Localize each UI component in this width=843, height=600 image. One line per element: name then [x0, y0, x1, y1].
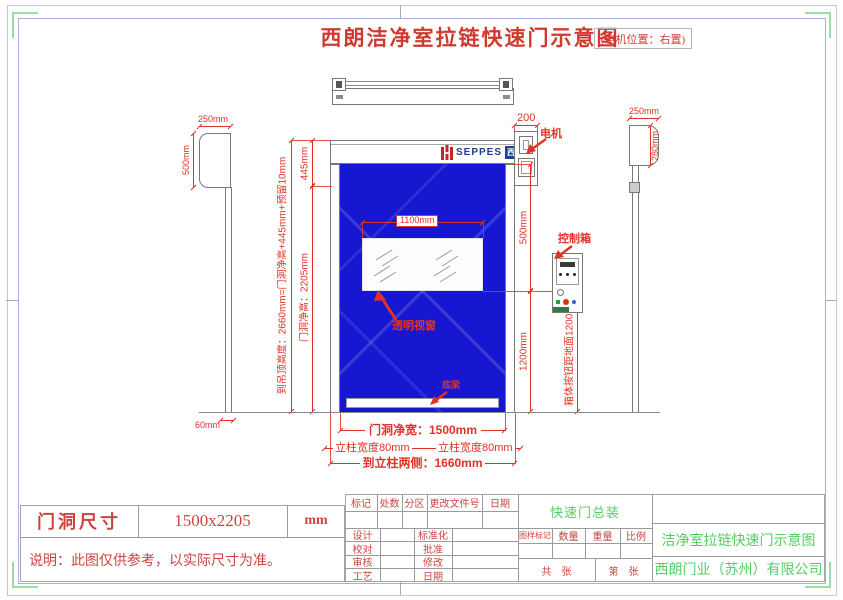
- clear-height-label: 门洞净高：2205mm: [300, 243, 311, 353]
- seppes-logo-icon: [441, 145, 453, 160]
- door-bottom-beam: [346, 398, 499, 408]
- ext-b4: [515, 413, 516, 464]
- control-box-key: [573, 273, 576, 276]
- tb-sign-label: 设计: [345, 528, 380, 541]
- tb-assembly-name: 快速门总装: [518, 494, 652, 528]
- control-box-stop-button: [563, 299, 569, 305]
- ceiling-height-dim: [291, 140, 292, 412]
- motor-annotation: 电机: [540, 128, 562, 140]
- corner-mark-bl: [12, 586, 38, 588]
- window-arrow: [372, 288, 402, 324]
- control-box-close-button: [572, 300, 576, 304]
- spec-label: 门洞尺寸: [20, 505, 138, 537]
- plan-end-bracket-left-core: [336, 81, 342, 88]
- plan-fixing-mark-right: [503, 95, 510, 99]
- tb-rev-header: 处数: [377, 494, 402, 511]
- control-box-dial: [557, 289, 564, 296]
- tb-sheets-total: 共 张: [518, 558, 595, 582]
- window-annotation: 透明视窗: [392, 320, 436, 332]
- corner-mark-tr: [805, 12, 831, 14]
- plan-end-bracket-right-core: [503, 81, 509, 88]
- tb-sign-label: 校对: [345, 541, 380, 555]
- floor-line: [199, 412, 660, 413]
- tb-sign-label: 工艺: [345, 568, 380, 582]
- plan-view-bar: [332, 88, 514, 105]
- left-rail-profile: [225, 187, 232, 413]
- window-top-dim: [530, 164, 531, 291]
- tb-info-header: 图样标记: [518, 528, 552, 543]
- door-column-left: [330, 164, 340, 413]
- header-height-dim: [312, 140, 313, 186]
- motor-position-note: (电机位置：右置): [594, 28, 692, 49]
- header-height-label: 445mm: [300, 142, 311, 186]
- ceiling-height-label: 到吊顶高度：2660mm=门洞净高+445mm+预留10mm: [278, 151, 289, 401]
- tb-line: [345, 511, 518, 512]
- control-box-key: [566, 273, 569, 276]
- button-height-dim: [530, 291, 531, 412]
- tb-info-header: 数量: [552, 528, 585, 543]
- left-rail-width-dim: [220, 420, 234, 421]
- corner-mark-tr: [829, 12, 831, 38]
- left-hood-width-label: 250mm: [198, 115, 228, 125]
- control-box-brand-strip: [553, 307, 569, 312]
- spec-note: 说明：此图仅供参考，以实际尺寸为准。: [20, 537, 345, 582]
- corner-mark-tl: [12, 12, 38, 14]
- window-width-ext-right: [483, 222, 484, 238]
- corner-mark-bl: [12, 562, 14, 588]
- column-width-right-label: 立柱宽度80mm: [436, 442, 515, 454]
- control-box-arrow: [552, 243, 574, 261]
- center-tick-left: [6, 300, 18, 301]
- motor-dim-ext-r: [537, 125, 538, 131]
- window-glass-marks: [368, 246, 478, 284]
- corner-mark-tl: [12, 12, 14, 38]
- control-box-screen: [560, 262, 575, 267]
- drawing-sheet: 西朗洁净室拉链快速门示意图 (电机位置：右置) 250mm 500mm 60mm…: [0, 0, 843, 600]
- window-top-label: 500mm: [519, 206, 530, 250]
- tb-sign-label: 标准化: [414, 528, 452, 541]
- seppes-logo-text: SEPPES: [456, 147, 502, 158]
- tb-line: [452, 528, 453, 582]
- plan-fixing-mark-left: [336, 95, 343, 99]
- tb-sign-label: 批准: [414, 541, 452, 555]
- clear-height-dim: [312, 186, 313, 412]
- motor-width-dim: [514, 125, 538, 126]
- corner-mark-br: [829, 562, 831, 588]
- center-tick-top: [400, 5, 401, 18]
- tb-info-header: 重量: [585, 528, 620, 543]
- control-box-open-button: [556, 300, 560, 304]
- tb-sign-label: 日期: [414, 568, 452, 582]
- tb-sign-label: 修改: [414, 555, 452, 568]
- left-hood-width-dim: [199, 126, 231, 127]
- right-hood-height-label: 280mm: [651, 126, 661, 166]
- tb-rev-header: 标记: [345, 494, 377, 511]
- tb-sheets-page: 第 张: [595, 558, 652, 582]
- tb-rev-header: 分区: [402, 494, 427, 511]
- window-width-label: 1100mm: [396, 215, 438, 227]
- tb-rev-header: 日期: [482, 494, 518, 511]
- bottom-beam-annotation: 底梁: [442, 381, 460, 391]
- ext-header-bottom: [312, 186, 332, 187]
- control-box-annotation: 控制箱: [558, 233, 591, 245]
- right-rail-bracket: [629, 182, 640, 193]
- tb-company: 西朗门业（苏州）有限公司: [652, 556, 825, 582]
- seppes-logo: SEPPES 西朗: [441, 144, 525, 161]
- right-rail-profile: [632, 165, 639, 413]
- left-hood-height-dim: [193, 133, 194, 188]
- right-hood-width-label: 250mm: [629, 107, 659, 117]
- clear-width-label: 门洞净宽：1500mm: [365, 424, 481, 437]
- center-tick-right: [825, 300, 837, 301]
- spec-unit: mm: [287, 505, 345, 537]
- tb-sign-label: 审核: [345, 555, 380, 568]
- total-width-label: 到立柱两侧：1660mm: [360, 457, 485, 470]
- left-hood-profile: [199, 133, 231, 188]
- motor-width-label: 200: [517, 112, 535, 124]
- tb-drawing-title: 洁净室拉链快速门示意图: [652, 523, 825, 556]
- plan-view-shaft: [346, 81, 499, 86]
- center-tick-bottom: [400, 582, 401, 595]
- left-rail-width-label: 60mm: [195, 421, 220, 431]
- motor-dim-ext-l: [514, 125, 515, 131]
- tb-line: [380, 528, 381, 582]
- corner-mark-br: [805, 586, 831, 588]
- spec-value: 1500x2205: [138, 505, 287, 537]
- ext-b3: [330, 413, 331, 464]
- tb-rev-header: 更改文件号: [427, 494, 482, 511]
- window-width-ext-left: [362, 222, 363, 238]
- button-height-label: 1200mm: [519, 326, 530, 378]
- left-hood-height-label: 500mm: [182, 140, 192, 180]
- column-width-left-label: 立柱宽度80mm: [333, 442, 412, 454]
- right-hood-width-dim: [629, 118, 659, 119]
- tb-info-header: 比例: [620, 528, 652, 543]
- door-column-right: [505, 164, 515, 413]
- control-box-key: [559, 273, 562, 276]
